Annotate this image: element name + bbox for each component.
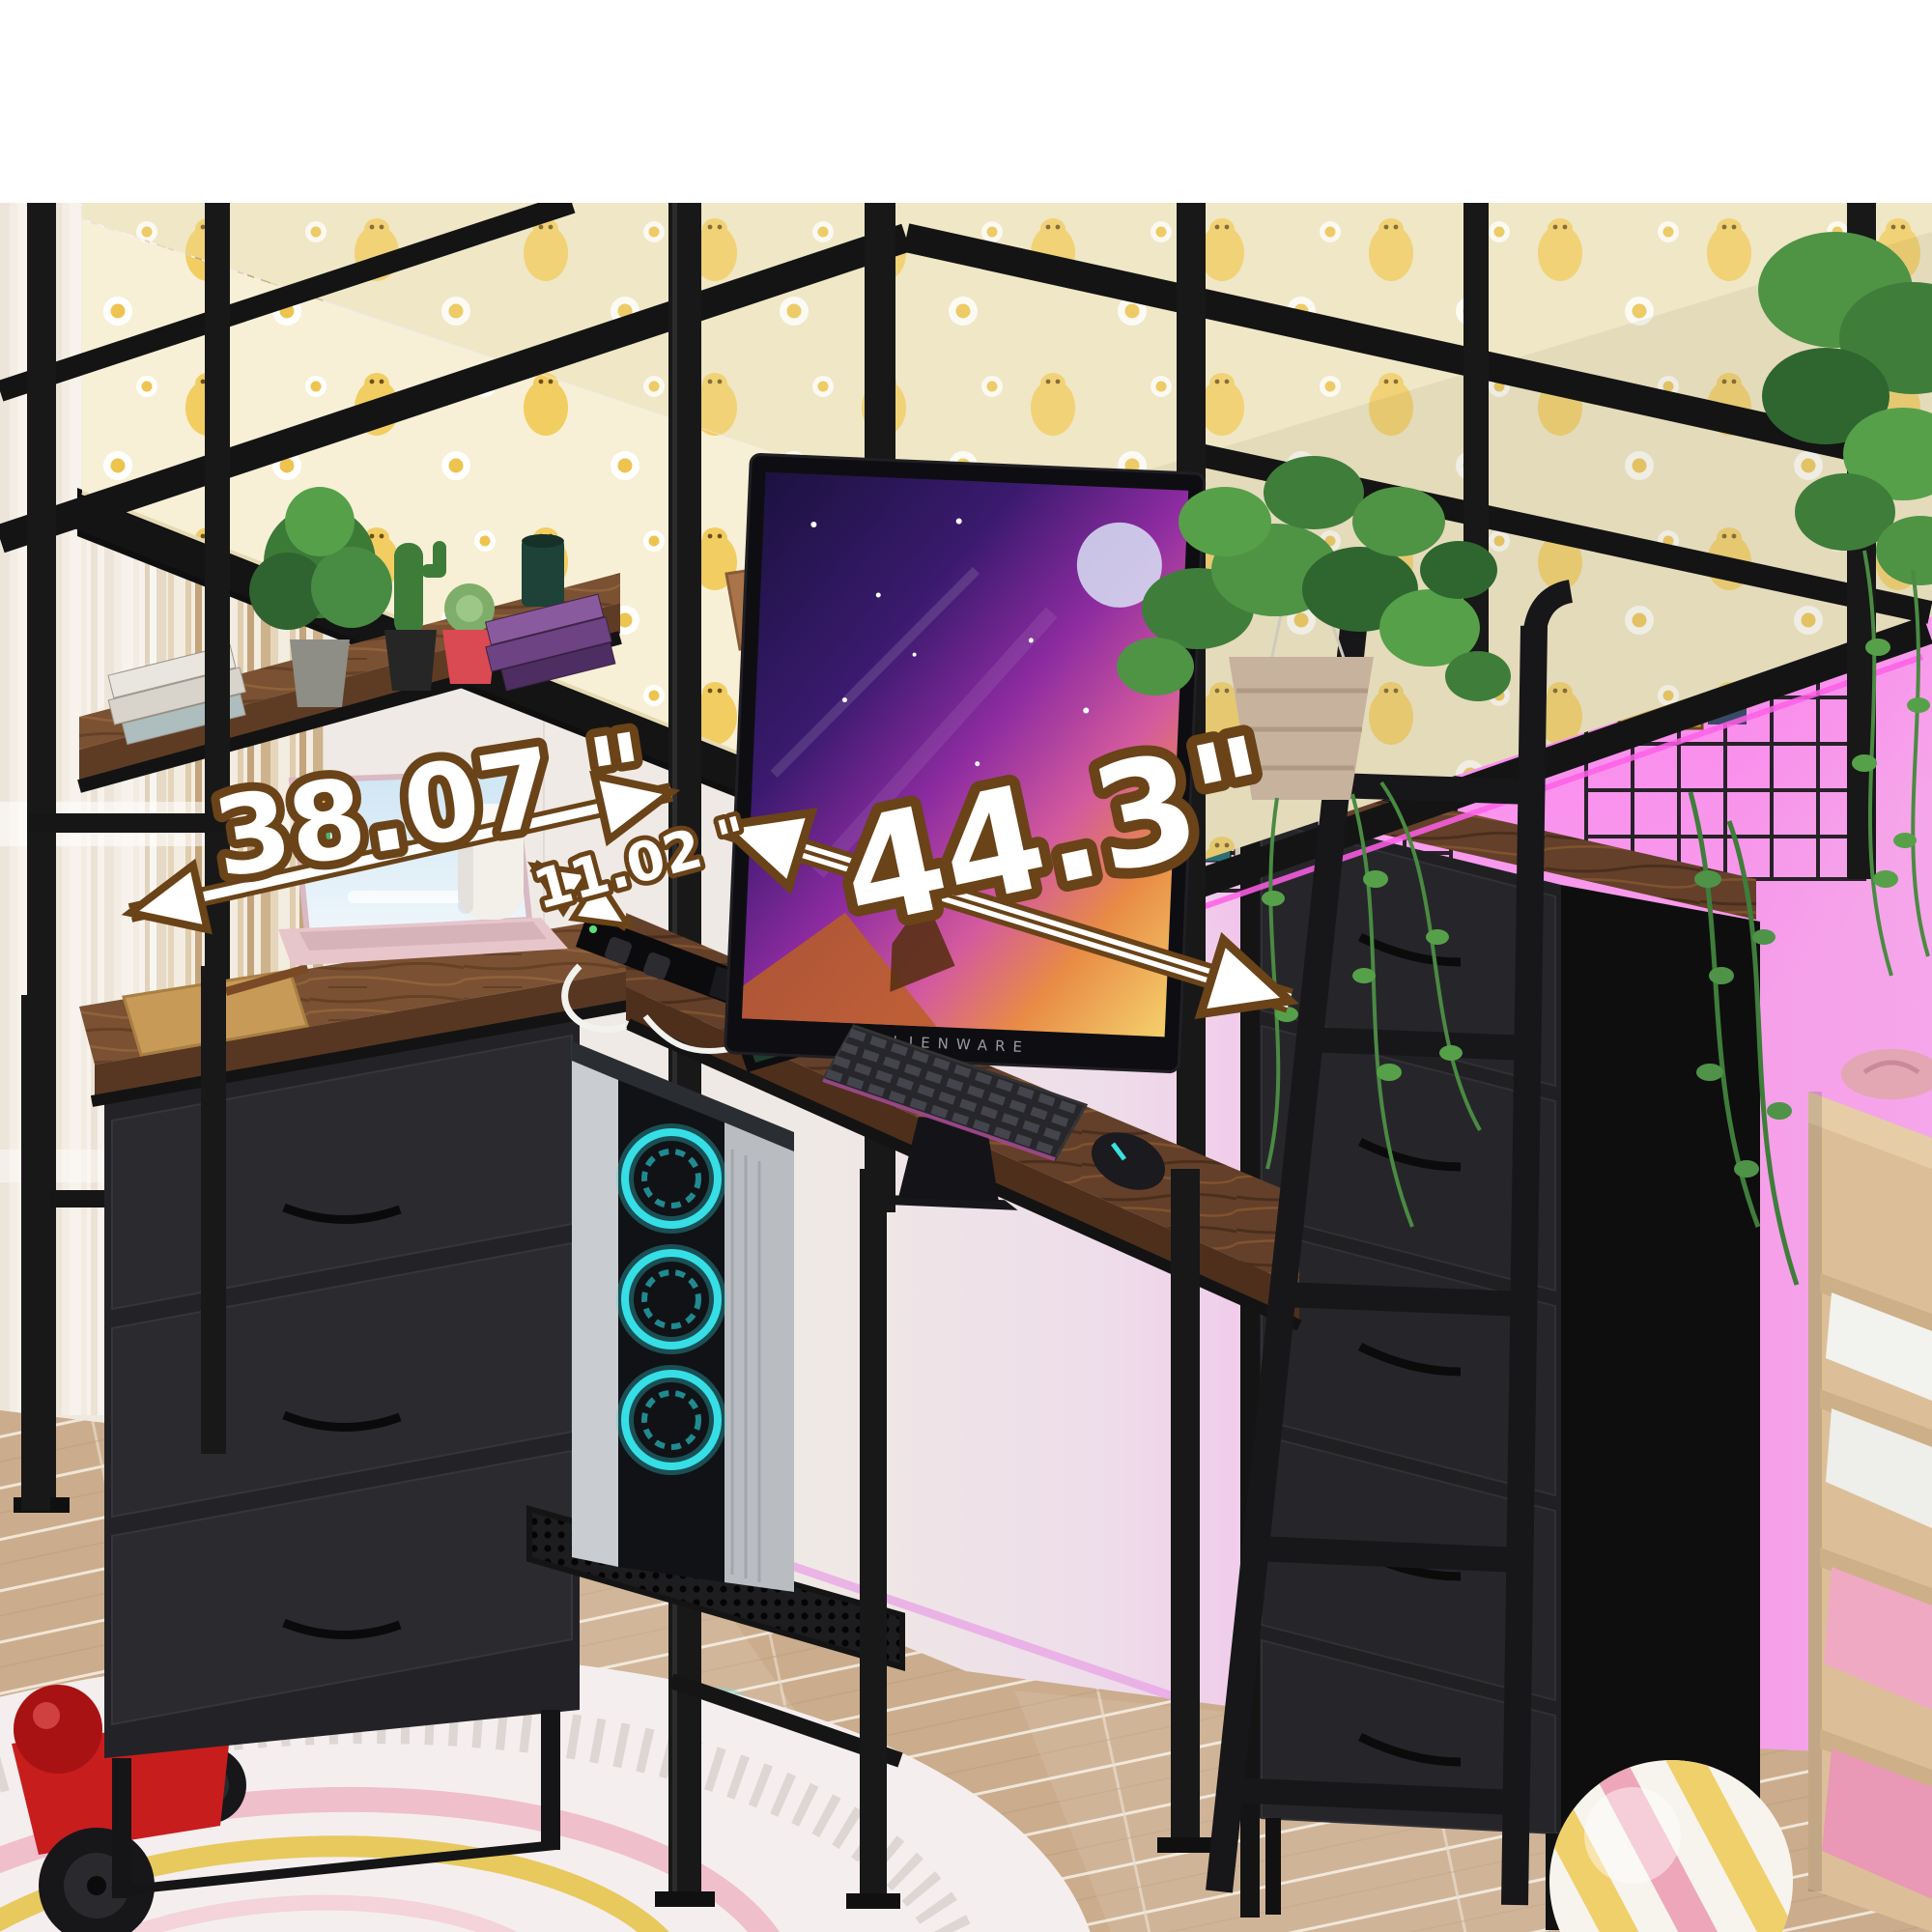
room-illustration: 2: [0, 203, 1932, 1932]
product-image: Loft Bed with L-Shaped Desk: [0, 0, 1932, 1932]
title-banner: Loft Bed with L-Shaped Desk: [0, 0, 1932, 203]
green-candle: [522, 534, 564, 607]
room-scene: 2: [0, 203, 1932, 1932]
storage-bins-unit: [1808, 1049, 1932, 1932]
pc-tower: [572, 1041, 794, 1592]
banner-title: Loft Bed with L-Shaped Desk: [231, 42, 1700, 162]
